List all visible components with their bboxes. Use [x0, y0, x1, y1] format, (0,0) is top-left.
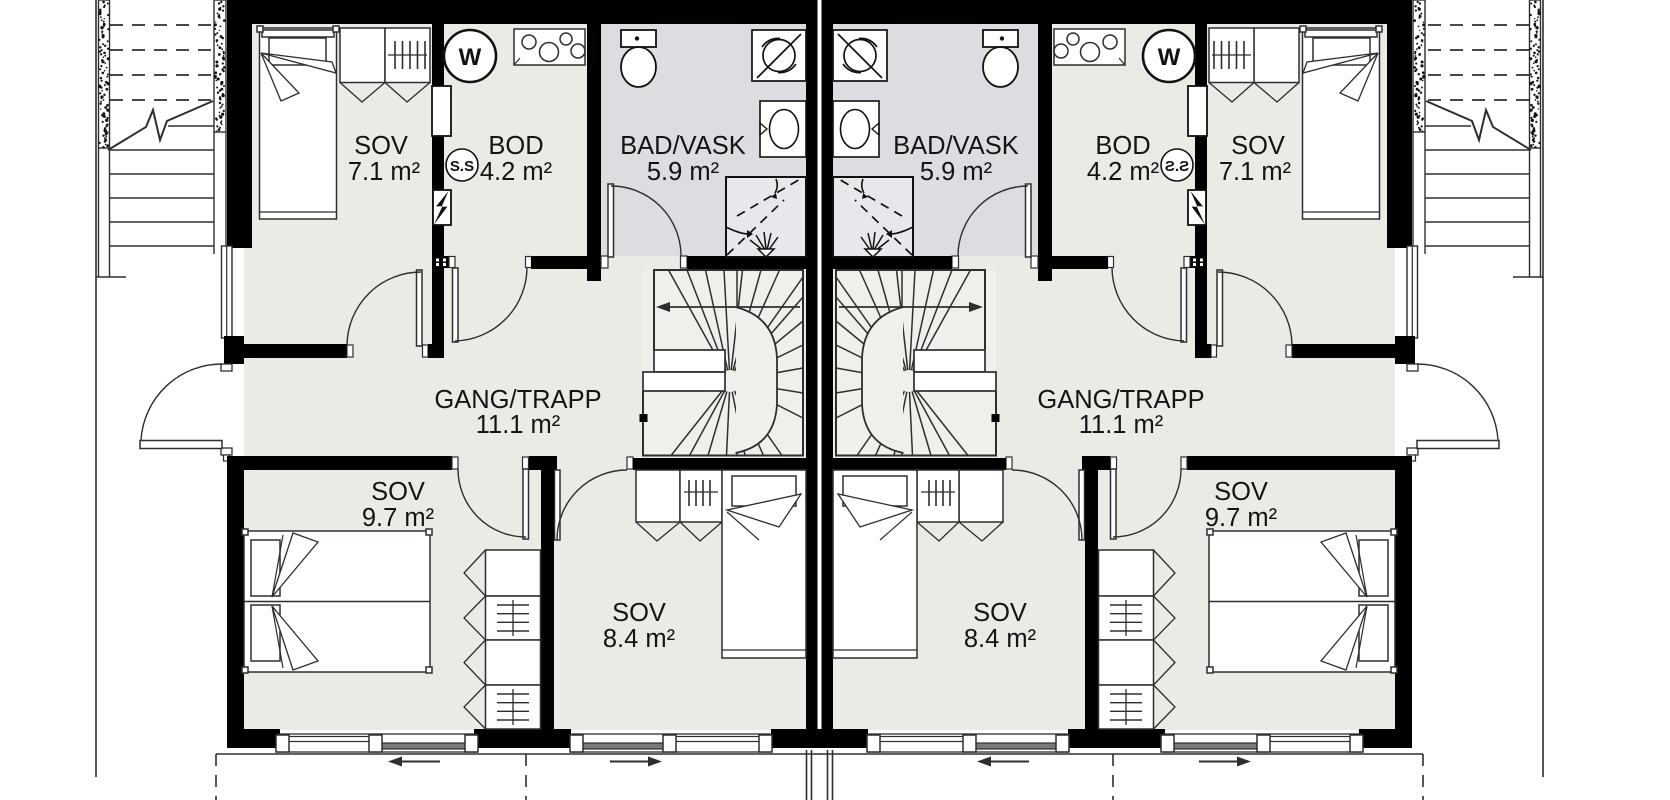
svg-text:4.2 m²: 4.2 m²: [1087, 158, 1159, 186]
svg-text:8.4 m²: 8.4 m²: [603, 625, 675, 653]
svg-text:7.1 m²: 7.1 m²: [348, 158, 420, 186]
svg-text:GANG/TRAPP: GANG/TRAPP: [434, 386, 601, 414]
svg-text:5.9 m²: 5.9 m²: [647, 158, 719, 186]
svg-text:4.2 m²: 4.2 m²: [480, 158, 552, 186]
svg-text:11.1 m²: 11.1 m²: [476, 411, 561, 439]
svg-text:8.4 m²: 8.4 m²: [964, 625, 1036, 653]
svg-text:SOV: SOV: [371, 478, 425, 506]
svg-text:11.1 m²: 11.1 m²: [1079, 411, 1164, 439]
svg-text:W: W: [459, 44, 482, 71]
svg-text:BOD: BOD: [1095, 132, 1150, 160]
svg-text:SOV: SOV: [1231, 132, 1285, 160]
svg-text:5.9 m²: 5.9 m²: [920, 158, 992, 186]
svg-text:7.1 m²: 7.1 m²: [1219, 158, 1291, 186]
svg-text:SOV: SOV: [354, 132, 408, 160]
svg-text:BOD: BOD: [488, 132, 543, 160]
svg-text:9.7 m²: 9.7 m²: [1205, 504, 1277, 532]
svg-text:SOV: SOV: [1214, 478, 1268, 506]
svg-text:SOV: SOV: [973, 599, 1027, 627]
svg-text:GANG/TRAPP: GANG/TRAPP: [1037, 386, 1204, 414]
svg-text:9.7 m²: 9.7 m²: [362, 504, 434, 532]
svg-text:S.S: S.S: [450, 158, 474, 175]
svg-text:SOV: SOV: [612, 599, 666, 627]
svg-text:BAD/VASK: BAD/VASK: [893, 132, 1019, 160]
svg-text:BAD/VASK: BAD/VASK: [620, 132, 746, 160]
